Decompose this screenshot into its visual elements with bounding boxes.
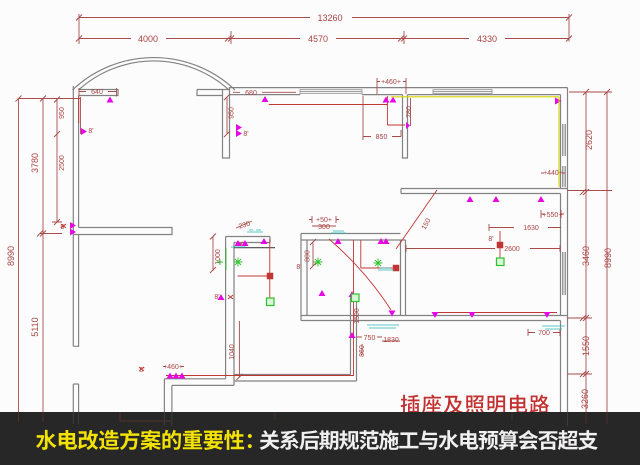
svg-text:850: 850 xyxy=(376,134,388,141)
svg-text:8': 8' xyxy=(243,131,248,138)
svg-text:950: 950 xyxy=(229,107,236,119)
svg-text:1630: 1630 xyxy=(523,225,539,232)
svg-text:2500: 2500 xyxy=(59,155,66,171)
svg-text:800: 800 xyxy=(305,250,312,262)
svg-text:+460+: +460+ xyxy=(163,364,183,371)
svg-text:4000: 4000 xyxy=(138,34,158,44)
svg-text:780: 780 xyxy=(406,106,413,118)
svg-text:1040: 1040 xyxy=(229,344,236,360)
svg-text:3260: 3260 xyxy=(580,389,590,409)
svg-text:750: 750 xyxy=(364,335,376,342)
svg-text:4570: 4570 xyxy=(308,34,328,44)
svg-text:+550+: +550+ xyxy=(543,212,563,219)
svg-text:150: 150 xyxy=(421,217,433,231)
svg-text:8': 8' xyxy=(296,264,301,271)
svg-text:+50+: +50+ xyxy=(316,217,332,224)
svg-text:860: 860 xyxy=(359,345,366,357)
svg-text:3460: 3460 xyxy=(581,246,591,266)
svg-text:950: 950 xyxy=(59,107,66,119)
svg-text:3780: 3780 xyxy=(30,153,40,173)
svg-text:8': 8' xyxy=(88,128,93,135)
svg-text:8990: 8990 xyxy=(603,248,613,268)
svg-text:700: 700 xyxy=(538,330,550,337)
svg-text:2600: 2600 xyxy=(504,246,520,253)
svg-text:1550: 1550 xyxy=(581,336,591,356)
svg-text:1500: 1500 xyxy=(354,308,361,324)
svg-text:13260: 13260 xyxy=(317,13,342,23)
svg-text:4330: 4330 xyxy=(477,34,497,44)
svg-text:300: 300 xyxy=(318,224,330,231)
svg-text:1830: 1830 xyxy=(383,337,399,344)
svg-text:2620: 2620 xyxy=(584,130,594,150)
svg-text:8': 8' xyxy=(488,236,493,243)
svg-text:680: 680 xyxy=(245,90,257,97)
svg-text:8990: 8990 xyxy=(6,246,16,266)
svg-text:+460+: +460+ xyxy=(381,79,401,86)
svg-text:+440+: +440+ xyxy=(543,170,563,177)
svg-text:230: 230 xyxy=(238,220,251,230)
svg-text:5110: 5110 xyxy=(30,317,40,336)
svg-text:640: 640 xyxy=(91,89,103,96)
